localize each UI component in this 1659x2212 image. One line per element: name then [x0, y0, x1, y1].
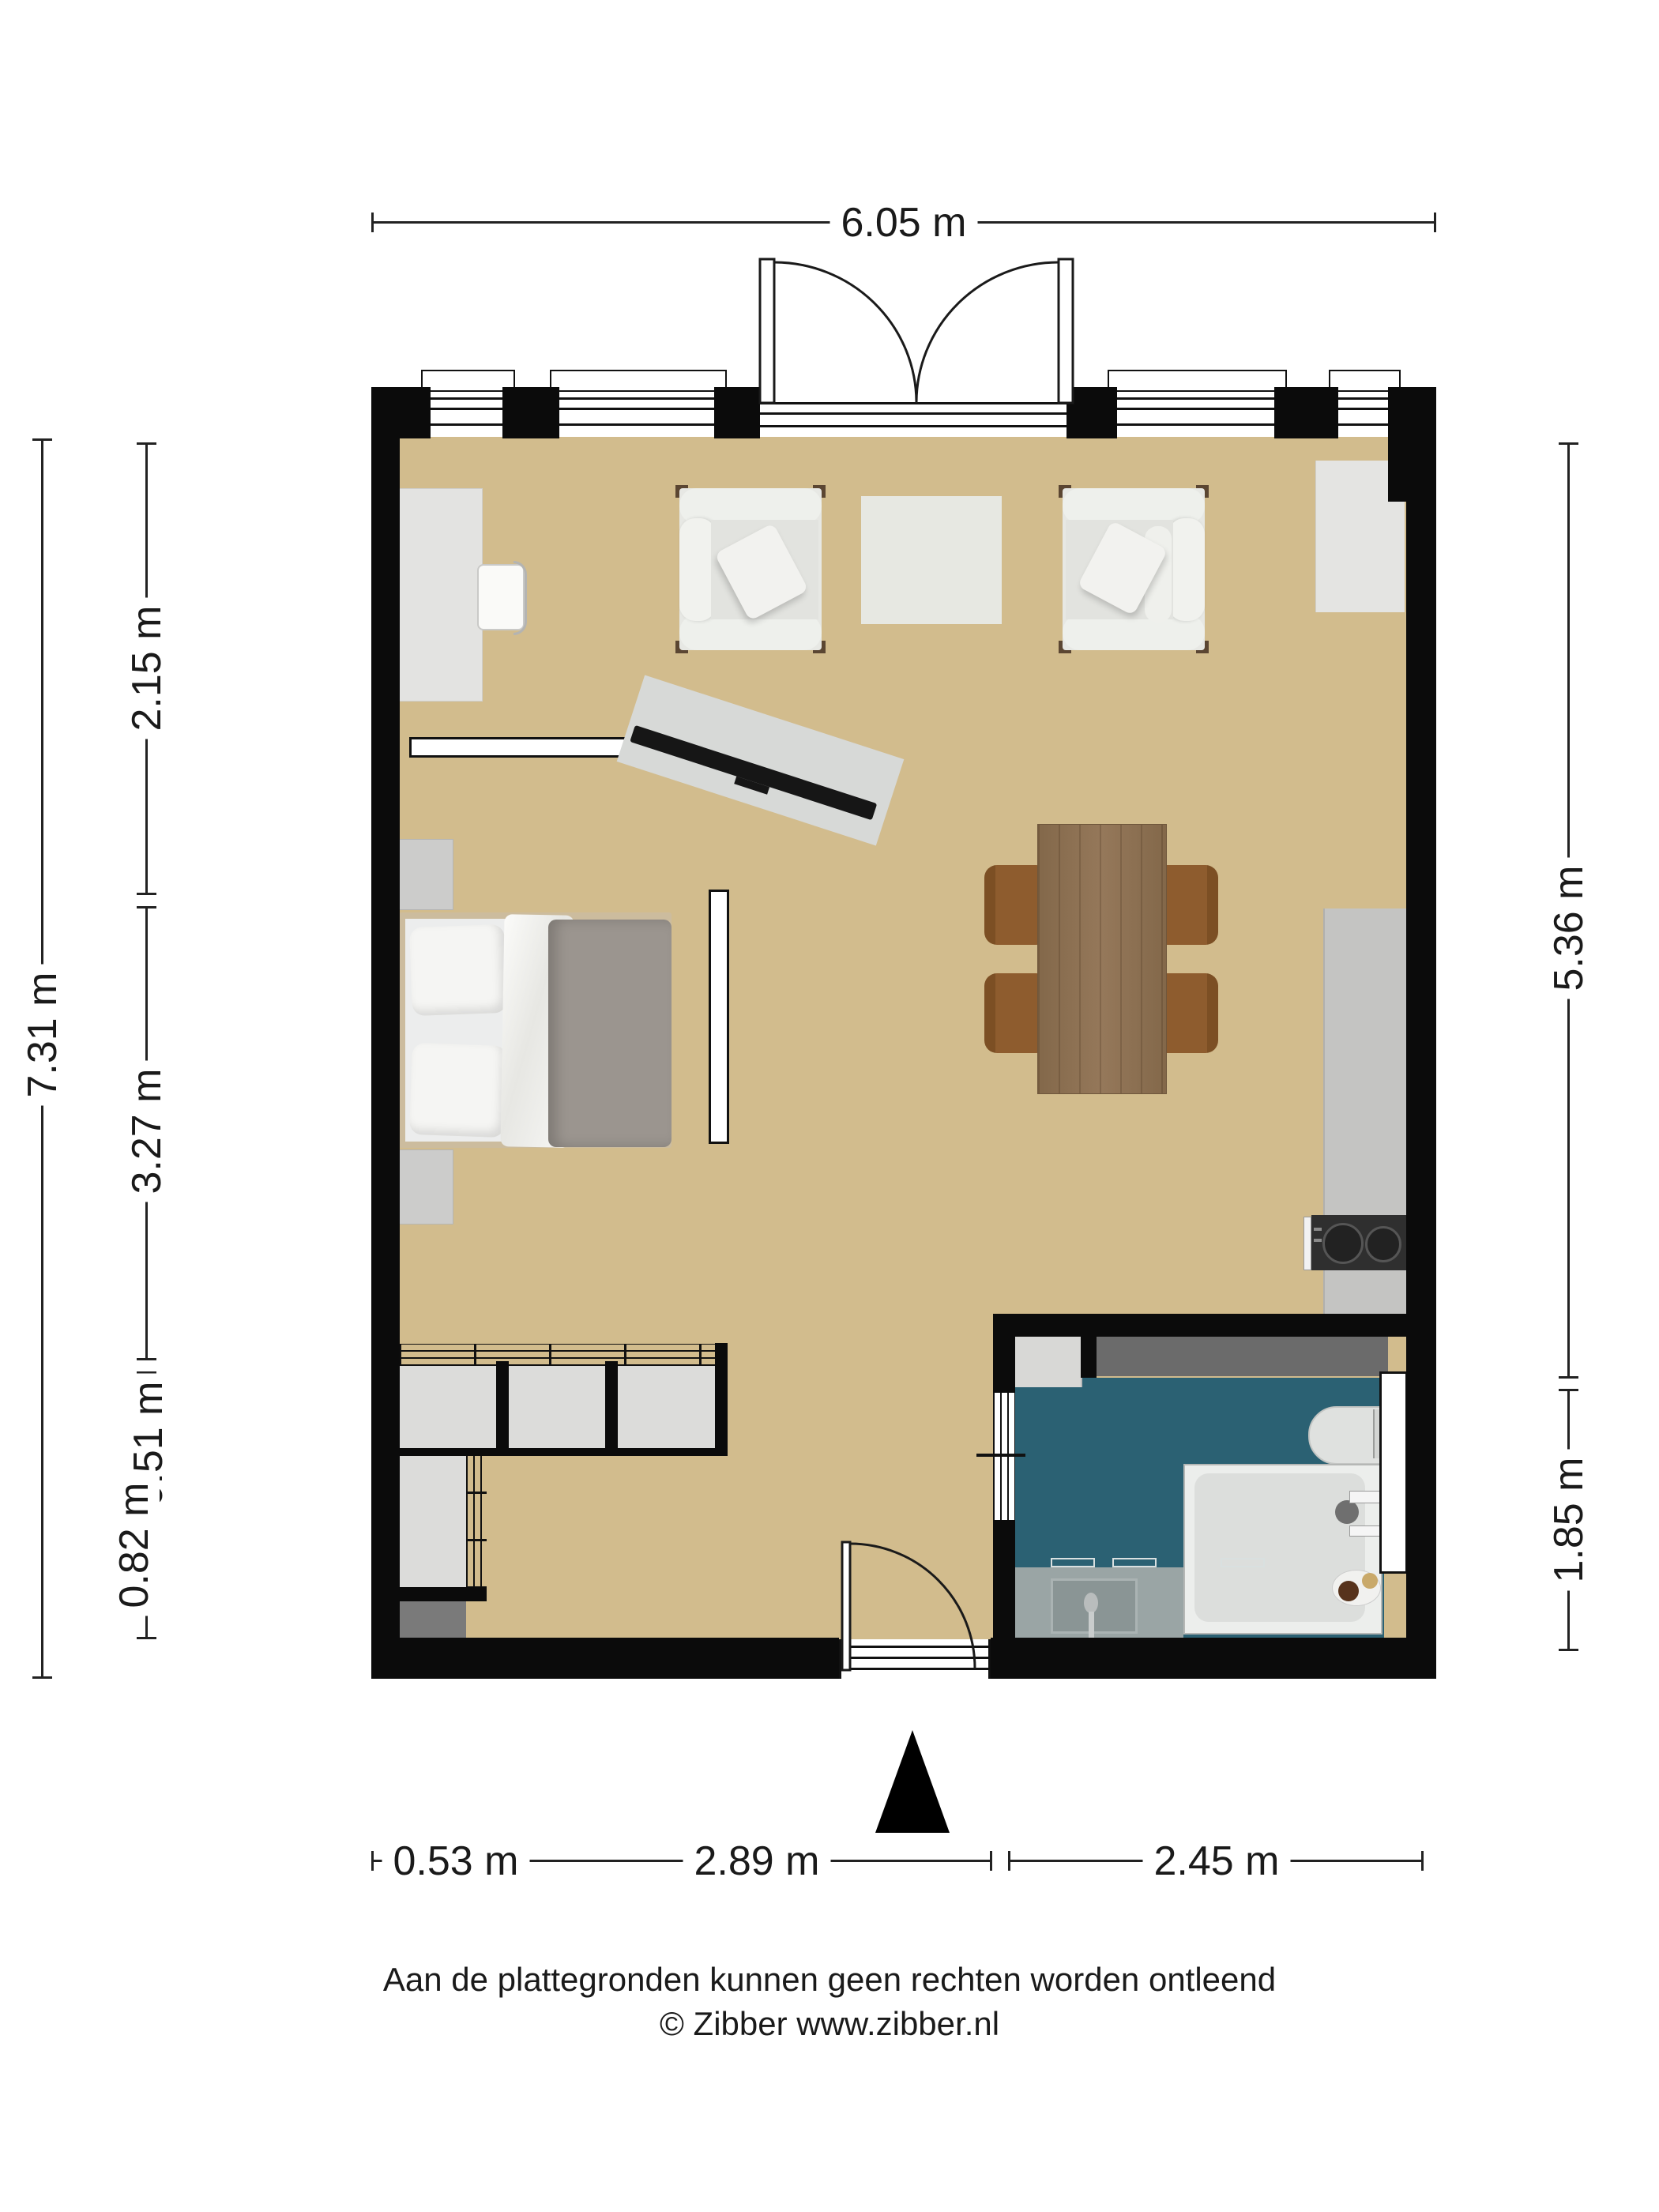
- wall-pier: [502, 387, 559, 438]
- nightstand: [399, 839, 453, 910]
- window-sill: [1108, 370, 1287, 392]
- copyright-text: © Zibber www.zibber.nl: [660, 2005, 999, 2043]
- sink-faucet-stem: [1089, 1612, 1094, 1639]
- wall-stub: [1081, 1337, 1097, 1378]
- cooktop: [1311, 1215, 1406, 1270]
- oven-handle: [1303, 1217, 1311, 1270]
- wall-right: [1406, 387, 1436, 1679]
- side-table: [861, 496, 1002, 624]
- double-bed: [399, 912, 671, 1148]
- bathroom-wall-left-lower: [993, 1520, 1015, 1639]
- wall-left: [371, 387, 400, 1679]
- window-sill: [550, 370, 727, 392]
- north-arrow-icon: [875, 1730, 950, 1833]
- wall-bottom-left: [371, 1638, 839, 1679]
- wardrobe: [399, 1366, 496, 1450]
- dim-bottom-seg3-label: 2.45 m: [1143, 1836, 1291, 1887]
- wardrobe-sliding-rail: [466, 1456, 487, 1589]
- armchair: [1063, 488, 1205, 650]
- wardrobe-partition: [496, 1361, 509, 1453]
- floorplan-canvas: 6.05 m 7.31 m 2.15 m 3.27 m 0.51 m 0.82 …: [0, 0, 1659, 2212]
- bathroom-counter: [1097, 1337, 1388, 1376]
- wardrobe: [399, 1456, 466, 1589]
- wall-pier: [1274, 387, 1338, 438]
- shower-screen: [1379, 1371, 1408, 1574]
- bed-pillow: [409, 1043, 507, 1138]
- dim-right-seg1-label: 5.36 m: [1544, 858, 1594, 999]
- dim-right-seg2-label: 1.85 m: [1544, 1450, 1594, 1591]
- dining-chair: [1163, 865, 1218, 945]
- entrance-door-icon: [822, 1534, 980, 1676]
- disclaimer-text: Aan de plattegronden kunnen geen rechten…: [383, 1961, 1276, 1999]
- wardrobe-end-wall: [715, 1343, 728, 1454]
- nightstand: [399, 1149, 453, 1224]
- window: [1338, 397, 1388, 426]
- armchair: [679, 488, 822, 650]
- dim-left-total-label: 7.31 m: [17, 965, 68, 1106]
- sink-faucet-icon: [1084, 1593, 1098, 1613]
- cooktop-knob: [1314, 1228, 1322, 1231]
- dining-table: [1037, 824, 1167, 1094]
- shower-drain-icon: [1338, 1581, 1359, 1601]
- dim-left-seg4-label: 0.82 m: [109, 1475, 160, 1616]
- shower-faucet-icon: [1335, 1500, 1359, 1524]
- towel-hook: [1221, 1558, 1265, 1567]
- shoe-cabinet: [399, 1601, 466, 1638]
- window: [1117, 397, 1274, 426]
- window-sill: [421, 370, 515, 392]
- shower: [1183, 1464, 1382, 1635]
- dim-bottom-seg2-label: 2.89 m: [683, 1836, 831, 1887]
- dining-chair: [984, 973, 1040, 1053]
- sink-vanity: [1015, 1567, 1183, 1639]
- bed-pillow: [409, 924, 507, 1016]
- wall-stub: [399, 1587, 487, 1601]
- dim-left-seg1-label: 2.15 m: [122, 598, 172, 739]
- wardrobe: [509, 1366, 605, 1450]
- window: [559, 397, 714, 426]
- bathroom-wall-top: [993, 1314, 1406, 1337]
- wardrobe-back-wall: [399, 1448, 728, 1456]
- dim-bottom-seg1-label: 0.53 m: [382, 1836, 530, 1887]
- desk: [399, 488, 483, 702]
- soap-icon: [1362, 1573, 1378, 1589]
- armchair-backrest: [1168, 518, 1205, 621]
- desk-chair-back: [513, 561, 527, 635]
- wardrobe: [618, 1366, 715, 1450]
- dining-chair: [984, 865, 1040, 945]
- burner-icon: [1322, 1223, 1364, 1264]
- shower-fixture: [1349, 1525, 1382, 1537]
- shower-fixture: [1349, 1491, 1382, 1503]
- burner-icon: [1365, 1226, 1401, 1262]
- wardrobe-sliding-rail: [399, 1344, 717, 1366]
- wall-pier: [714, 387, 760, 438]
- towel-hook: [1051, 1558, 1095, 1567]
- bathroom-wall-left-upper: [993, 1314, 1015, 1393]
- door-pull-line: [976, 1454, 1025, 1457]
- window: [431, 397, 502, 426]
- wardrobe-partition: [605, 1361, 618, 1453]
- dining-chair: [1163, 973, 1218, 1053]
- towel-hook: [1112, 1558, 1157, 1567]
- washing-machine: [1015, 1337, 1082, 1387]
- cooktop-knob: [1314, 1239, 1322, 1242]
- double-door-icon: [757, 254, 1076, 409]
- toilet-icon: [1308, 1406, 1389, 1465]
- wall-bottom-right: [991, 1638, 1436, 1679]
- bed-duvet: [548, 920, 671, 1147]
- dim-left-seg2-label: 3.27 m: [122, 1061, 172, 1202]
- dim-top-label: 6.05 m: [830, 197, 978, 248]
- room-divider: [709, 890, 729, 1144]
